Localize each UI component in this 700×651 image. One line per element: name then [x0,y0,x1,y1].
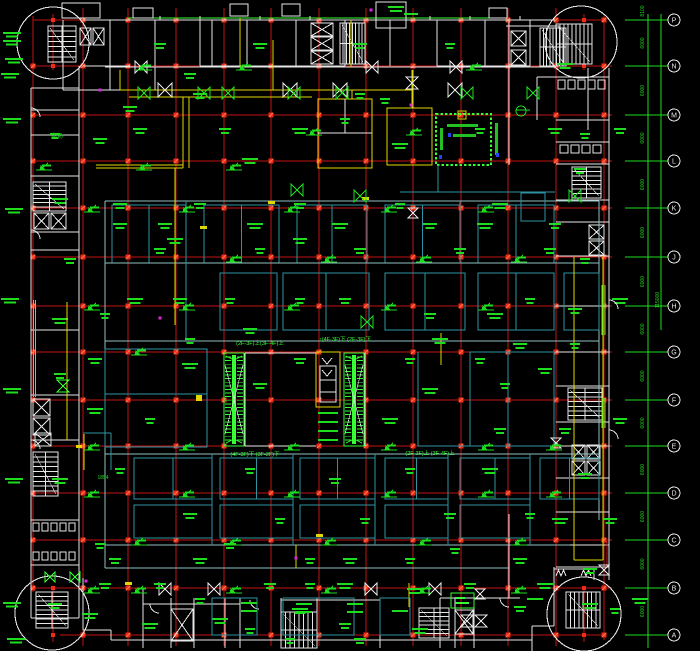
svg-text:6000: 6000 [640,370,646,381]
svg-text:6000: 6000 [640,511,646,522]
svg-text:(2F-3F)上(3F-4F)上: (2F-3F)上(3F-4F)上 [236,339,284,347]
svg-text:6000: 6000 [640,417,646,428]
svg-text:D: D [671,490,676,497]
svg-text:C: C [671,537,676,544]
svg-text:K: K [672,205,677,212]
svg-text:6000: 6000 [640,179,646,190]
svg-text:J: J [672,254,676,261]
svg-text:P: P [672,17,677,24]
svg-text:M: M [671,112,677,119]
svg-text:6000: 6000 [640,132,646,143]
svg-text:6000: 6000 [640,464,646,475]
svg-text:E: E [672,443,677,450]
svg-text:H: H [671,303,676,310]
svg-text:6000: 6000 [640,606,646,617]
svg-text:L: L [672,158,676,165]
svg-text:8100: 8100 [640,5,646,16]
svg-text:(2F-3F)上 (3F-4F)上: (2F-3F)上 (3F-4F)上 [405,449,455,457]
svg-text:1854: 1854 [97,475,108,481]
svg-text:115000: 115000 [655,292,661,309]
svg-text:商场: 商场 [51,132,63,140]
svg-text:F: F [672,397,676,404]
svg-text:A: A [672,632,677,639]
svg-text:(4F-3F)下 (3F-2F)下: (4F-3F)下 (3F-2F)下 [230,451,280,458]
svg-text:6000: 6000 [640,276,646,287]
svg-text:B: B [672,585,677,592]
svg-text:G: G [671,349,676,356]
svg-text:6000: 6000 [640,323,646,334]
svg-text:↑(4F-3F)下 (2F-3F)下: ↑(4F-3F)下 (2F-3F)下 [319,336,371,343]
svg-text:6000: 6000 [640,227,646,238]
svg-text:6000: 6000 [640,558,646,569]
svg-text:6000: 6000 [640,85,646,96]
svg-text:6000: 6000 [640,37,646,48]
svg-text:N: N [671,63,676,70]
